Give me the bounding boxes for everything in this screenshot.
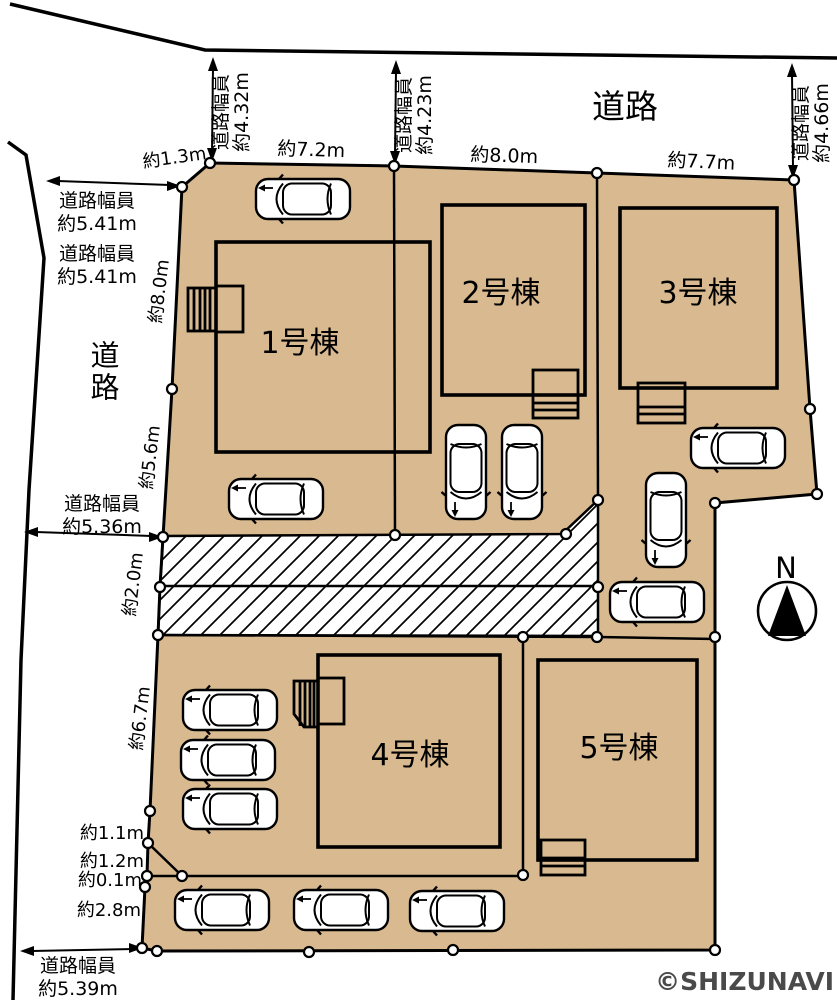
car-icon (256, 175, 350, 224)
building-4-label: 4号棟 (370, 738, 449, 773)
car-icon (183, 785, 277, 834)
svg-text:道路幅員: 道路幅員 (59, 243, 135, 265)
dim-left-2: 約5.6m (136, 424, 165, 490)
svg-text:道路幅員: 道路幅員 (790, 85, 812, 161)
dim-left-4: 約6.7m (126, 685, 155, 751)
building-5-label: 5号棟 (579, 731, 658, 766)
road-label-top: 道路 (592, 87, 658, 126)
building-3-label: 3号棟 (658, 276, 737, 311)
car-icon (642, 473, 691, 567)
road-width-label-top-right: 道路幅員 約4.66m (790, 83, 833, 163)
building-2-label: 2号棟 (461, 276, 540, 311)
car-icon (610, 578, 704, 627)
site-plan-drawing: N 道路 道路 道路幅員 約4.32m 道路幅員 約4.23m 道路幅員 約4.… (0, 0, 837, 1000)
dim-corner: 約1.3m (141, 143, 207, 173)
svg-text:約5.41m: 約5.41m (57, 266, 137, 288)
car-icon (691, 424, 785, 473)
car-icon (181, 736, 275, 785)
dim-left-7: 約0.1m (78, 870, 142, 891)
north-label: N (775, 551, 797, 585)
dim-top-lot3: 約7.7m (667, 149, 736, 175)
north-arrow-icon: N (758, 551, 816, 640)
dim-left-6: 約1.2m (80, 851, 144, 872)
svg-text:道路幅員: 道路幅員 (59, 190, 135, 212)
car-icon (442, 425, 491, 519)
dim-left-3: 約2.0m (119, 551, 148, 617)
svg-text:約5.36m: 約5.36m (62, 516, 142, 538)
svg-text:道路幅員: 道路幅員 (393, 77, 415, 153)
svg-text:道路幅員: 道路幅員 (210, 74, 232, 150)
car-icon (294, 886, 388, 935)
svg-text:約5.39m: 約5.39m (38, 978, 118, 1000)
svg-text:約4.32m: 約4.32m (231, 72, 253, 152)
road-width-label-left-b: 道路幅員 約5.41m (57, 243, 137, 288)
car-icon (410, 887, 504, 936)
car-icon (498, 425, 547, 519)
dim-left-8: 約2.8m (77, 900, 141, 921)
dim-left-5: 約1.1m (80, 823, 144, 844)
site-plan: N 道路 道路 道路幅員 約4.32m 道路幅員 約4.23m 道路幅員 約4.… (0, 0, 837, 1000)
car-icon (183, 686, 277, 735)
watermark: ©SHIZUNAVI (655, 967, 834, 996)
svg-text:約5.41m: 約5.41m (57, 213, 137, 235)
road-label-left: 道路 (86, 340, 120, 404)
dim-left-1: 約8.0m (145, 258, 174, 324)
car-icon (175, 886, 269, 935)
dim-top-lot1: 約7.2m (277, 138, 345, 162)
road-width-label-left-a: 道路幅員 約5.41m (57, 190, 137, 235)
svg-text:道路幅員: 道路幅員 (64, 493, 140, 515)
svg-text:約4.66m: 約4.66m (811, 83, 833, 163)
car-icon (229, 475, 323, 524)
building-1-label: 1号棟 (260, 326, 339, 361)
svg-text:約4.23m: 約4.23m (414, 75, 436, 155)
road-width-label-left-bottom: 道路幅員 約5.39m (38, 955, 118, 1000)
svg-text:道路幅員: 道路幅員 (40, 955, 116, 977)
road-width-label-top-mid: 道路幅員 約4.23m (393, 75, 436, 155)
dim-top-lot2: 約8.0m (470, 144, 538, 168)
road-width-label-top-left: 道路幅員 約4.32m (210, 72, 253, 152)
road-width-label-left-mid: 道路幅員 約5.36m (62, 493, 142, 538)
